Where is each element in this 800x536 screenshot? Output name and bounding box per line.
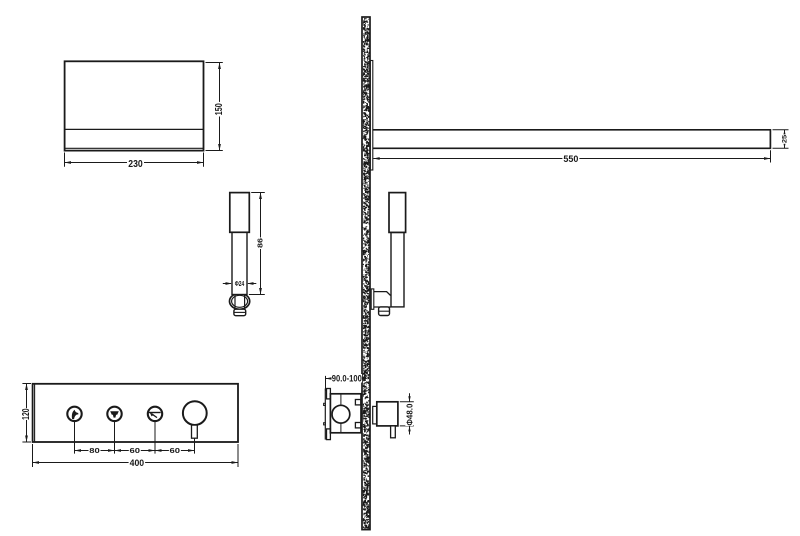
svg-text:400: 400 bbox=[130, 458, 145, 468]
svg-text:90.0-100: 90.0-100 bbox=[332, 374, 362, 384]
svg-text:60: 60 bbox=[130, 446, 141, 455]
svg-text:60: 60 bbox=[170, 446, 181, 455]
svg-text:150: 150 bbox=[214, 103, 225, 115]
svg-text:550: 550 bbox=[563, 154, 578, 164]
svg-text:25: 25 bbox=[782, 135, 789, 144]
svg-text:80: 80 bbox=[89, 446, 100, 455]
svg-text:Φ24: Φ24 bbox=[235, 281, 245, 288]
svg-text:120: 120 bbox=[21, 408, 32, 420]
svg-text:86: 86 bbox=[258, 238, 265, 248]
svg-text:Φ48.0: Φ48.0 bbox=[406, 403, 415, 426]
svg-text:230: 230 bbox=[128, 159, 143, 170]
